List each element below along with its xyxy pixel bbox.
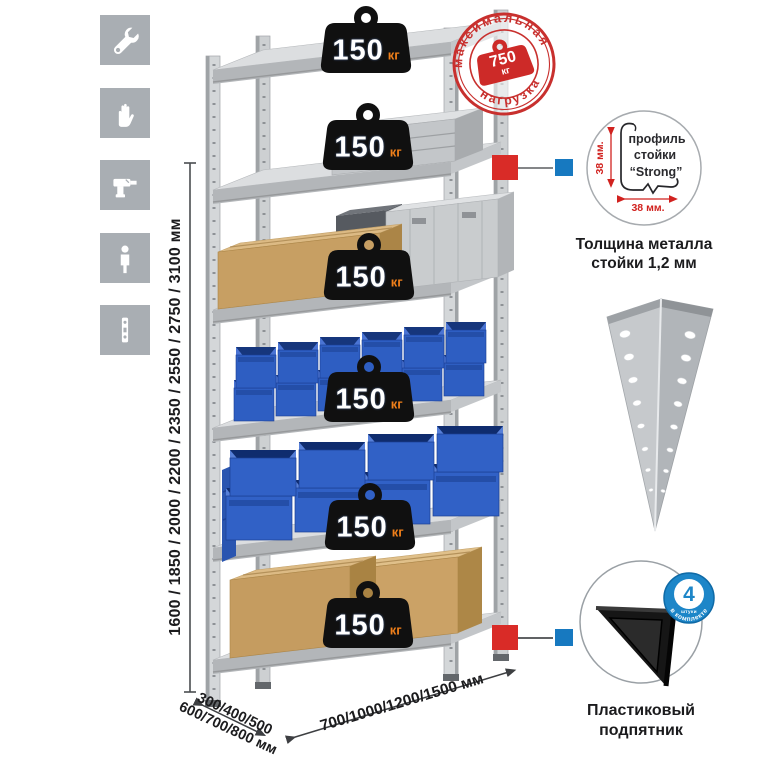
badge-value: 4	[683, 583, 695, 606]
profile-caption-line1: Толщина металла	[544, 236, 744, 255]
product-infographic: максимальная нагрузка 750 кг 38 мм. 38 м…	[0, 0, 765, 765]
connector-red-square-bottom	[492, 625, 518, 650]
foot-caption-line1: Пластиковый	[541, 701, 741, 721]
profile-text-line2: стойки	[634, 148, 676, 162]
corner-post-image	[607, 299, 713, 531]
badge-small-text: штуки	[681, 609, 697, 614]
max-load-stamp: максимальная нагрузка 750 кг	[440, 0, 566, 125]
connector-blue-square-bottom	[555, 629, 573, 646]
post-profile-icon	[100, 305, 150, 355]
profile-text-line1: профиль	[628, 132, 685, 146]
shelf-weight-icons	[321, 10, 415, 649]
gloves-icon	[100, 88, 150, 138]
wrench-icon	[100, 15, 150, 65]
foot-caption-line2: подпятник	[541, 721, 741, 741]
foot-caption: Пластиковый подпятник	[541, 701, 741, 740]
profile-detail-circle: 38 мм. 38 мм. профиль стойки “Strong”	[587, 111, 701, 225]
kit-count-badge: 4 штуки в комплекте	[664, 573, 714, 623]
height-dimension-label: 1600 / 1850 / 2000 / 2200 / 2350 / 2550 …	[167, 218, 185, 635]
profile-text-line3: “Strong”	[630, 165, 683, 179]
connector-red-square-top	[492, 155, 518, 180]
profile-thickness-caption: Толщина металла стойки 1,2 мм	[544, 236, 744, 274]
person-icon	[100, 233, 150, 283]
profile-dim-horizontal: 38 мм.	[631, 202, 664, 214]
drill-icon	[100, 160, 150, 210]
connector-blue-square-top	[555, 159, 573, 176]
profile-caption-line2: стойки 1,2 мм	[544, 255, 744, 274]
profile-dim-vertical: 38 мм.	[594, 141, 606, 174]
